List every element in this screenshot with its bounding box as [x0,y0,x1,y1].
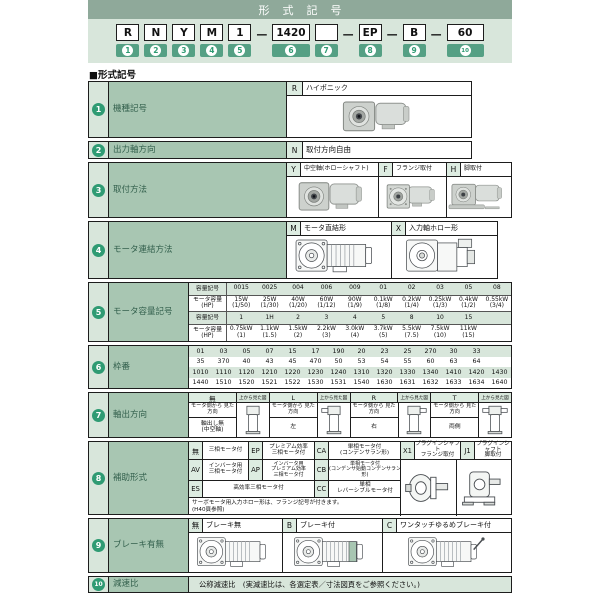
image-box [189,533,282,572]
shaft-direction-option: T上から見た図 モータ側から 見た方向 両側 [431,393,511,437]
frame-number-cell: 1510 [212,378,235,389]
row-number-cell: 8 [89,442,109,514]
header-title: 形式記号 [88,0,512,19]
code-cell: F [379,163,393,176]
row-label: ブレーキ有無 [109,519,189,572]
mount-option: H 脚取付 [447,163,511,217]
frame-number-cell: 1634 [465,378,488,389]
code-cell: 無 [189,519,203,532]
image-box [287,236,391,278]
capacity-value-cell: 0.55kW(3/4) [483,296,511,311]
code-unit: B9 [403,24,426,57]
code-cell: J1 [461,442,475,459]
code-box: 1 [228,24,251,41]
capacity-code-cell: 08 [483,283,511,295]
frame-number-cell: 54 [373,357,396,368]
code-cell: 無 [189,442,203,459]
image-box [318,403,350,437]
code-cell: X1 [401,442,415,459]
direction-label: 左 [270,418,317,437]
capacity-hp: (2) [294,333,303,340]
row-number: 6 [92,361,105,374]
capacity-row-label-line: (HP) [201,333,213,339]
brake-option: 無 ブレーキ無 [189,519,283,572]
code-desc: 入力軸ホロー形 [406,222,461,235]
hollow-shaft-gearmotor-icon [293,178,373,216]
row-number: 3 [92,184,105,197]
code-desc: プラグインシャフト フランジ取付 [415,442,461,459]
image-box [287,96,471,137]
frame-number-cell: 1330 [396,367,419,378]
image-box [457,460,512,516]
table-row-frame-number: 6 枠番 01030507151719020232527030333537040… [88,345,512,389]
frame-number-cell: 190 [327,346,350,357]
shaft-right-diagram-icon [401,404,427,436]
dash-separator: — [387,28,398,41]
top-view-label: 上から見た図 [237,393,269,402]
frame-number-cell [488,346,511,357]
aux-images [401,460,511,516]
code-desc: 脚取付 [461,163,485,176]
capacity-hp: (1/3) [433,303,447,310]
code-desc: 取付方向自由 [303,142,354,158]
code-desc: 単相モータ付 (コンデンサ始動コンデンサラン形) [329,460,401,480]
frame-number-cell: 270 [419,346,442,357]
frame-number-cell: 45 [281,357,304,368]
capacity-hp: (1) [237,333,246,340]
capacity-table: 容量記号001500250040060090102030508モータ容量(HP)… [189,283,511,341]
table-row-reduction-ratio: 10 減速比 公称減速比 (実減速比は、各選定表／寸法図頁をご参照ください。) [88,576,512,593]
row-number-cell: 4 [89,222,109,278]
table-row-brake: 9 ブレーキ有無 無 ブレーキ無 B ブレーキ付 [88,518,512,573]
table-row-motor-capacity: 5 モータ容量記号 容量記号00150025004006009010203050… [88,282,512,342]
code-cell: L [270,393,318,402]
code-desc: インバータ用 三相モータ付 [203,460,249,480]
shaft-direction-option: L上から見た図 モータ側から 見た方向 左 [270,393,351,437]
table-row-type: 1 機種記号 R ハイポニック [88,81,472,138]
model-code-header: 形式記号 R1N2Y3M415—142067—EP8—B9—6010 [88,0,512,63]
row-number-cell: 7 [89,393,109,437]
code-box [315,24,338,41]
frame-number-cell: 370 [212,357,235,368]
row-number-cell: 5 [89,283,109,341]
code-desc: 高効率三相モータ付 [203,481,315,497]
row-number: 2 [92,144,105,157]
code-cell: AP [249,460,263,480]
code-box: M [200,24,223,41]
row-label: 出力軸方向 [109,142,287,158]
code-box: EP [359,24,382,41]
row-label: 軸出方向 [109,393,189,437]
direction-label: 両側 [431,418,478,437]
top-view-label: 上から見た図 [398,393,430,402]
capacity-code-cell: 5 [369,312,397,324]
code-header: C ワンタッチゆるめブレーキ付 [383,519,511,533]
frame-number-cell: 1430 [488,367,511,378]
capacity-code-cell: 03 [426,283,454,295]
code-unit: 14206 [272,24,309,57]
code-desc: ワンタッチゆるめブレーキ付 [397,519,494,532]
section-heading: ■形式記号 [89,67,136,81]
row-content: 無 三相モータ付 EP プレミアム効率 三相モータ付 CA 単相モータ付 (コン… [189,442,511,514]
code-cell: B [283,519,297,532]
view-label: モータ側から 見た方向 [270,403,317,418]
aux-row-1: 無 三相モータ付 EP プレミアム効率 三相モータ付 CA 単相モータ付 (コン… [189,442,511,460]
row-content: Y 中空軸(ホローシャフト) F フランジ取付 [287,163,511,217]
code-header: N 取付方向自由 [287,142,471,158]
capacity-value-cell: 40W(1/20) [284,296,312,311]
direction-label: 右 [351,418,398,437]
row-content: M モータ直結形 X 入力軸ホロー形 [287,222,497,278]
top-view-label: 上から見た図 [479,393,511,402]
code-cell: H [447,163,461,176]
frame-number-cell: 470 [304,357,327,368]
capacity-code-cell: 8 [397,312,425,324]
capacity-value-cell: 3.7kW(5) [369,325,397,341]
code-desc: ブレーキ無 [203,519,244,532]
code-number-chip: 8 [359,44,382,57]
view-label: モータ側から 見た方向 [189,403,236,418]
capacity-value-cell: 15W(1/50) [227,296,255,311]
capacity-hp: (1/20) [289,303,307,310]
table-row-output-shaft: 2 出力軸方向 N 取付方向自由 [88,141,472,159]
code-header: Y 中空軸(ホローシャフト) [287,163,378,177]
code-number: 5 [234,45,245,56]
code-unit: 15 [228,24,251,57]
code-desc: フランジ取付 [393,163,435,176]
frame-number-cell: 1240 [327,367,350,378]
code-header: M モータ直結形 [287,222,391,236]
frame-number-cell: 15 [281,346,304,357]
aux-note: サーボモータ用入力ホロー形は、フランジ記号が付きます。 (H40頁参照) [189,498,400,516]
motor-release-brake-drawing-icon [404,535,490,571]
capacity-code-cell [483,312,511,324]
code-cell: C [383,519,397,532]
capacity-hp: (3) [322,333,331,340]
row-content: 無 ブレーキ無 B ブレーキ付 [189,519,511,572]
capacity-value-cell: 1.5kW(2) [284,325,312,341]
code-cell: T [431,393,479,402]
code-number-chip: 3 [172,44,195,57]
code-number: 3 [178,45,189,56]
row-number: 9 [92,539,105,552]
code-number: 2 [150,45,161,56]
code-cell: M [287,222,301,235]
frame-number-cell: 50 [327,357,350,368]
code-cell: Y [287,163,301,176]
code-desc: ハイポニック [303,82,351,95]
frame-number-cell: 1540 [350,378,373,389]
capacity-code-cell: 004 [284,283,312,295]
dash-separator: — [343,28,354,41]
code-desc: プラグインシャフト 脚取付 [475,442,511,459]
code-unit: N2 [144,24,167,57]
capacity-row-label-line: (HP) [201,303,213,309]
shaft-none-diagram-icon [240,404,266,436]
code-unit: M4 [200,24,223,57]
capacity-code-cell: 1H [255,312,283,324]
code-desc: 単相モータ付 (コンデンサラン形) [329,442,401,459]
aux-row-3: ES 高効率三相モータ付 CC 単相 レバーシブルモータ付 [189,481,400,498]
image-box [283,533,382,572]
capacity-code-cell: 02 [397,283,425,295]
capacity-value-cell [483,325,511,341]
frame-number-cell: 17 [304,346,327,357]
capacity-code-row: 容量記号001500250040060090102030508 [189,283,511,296]
row-label: 減速比 [109,577,189,592]
table-row-shaft-direction: 7 軸出方向 無上から見た図 モータ側から 見た方向 軸出し無 (中空軸) [88,392,512,438]
capacity-hp: (3/4) [490,303,504,310]
image-box [479,403,511,437]
shaft-left-diagram-icon [321,404,347,436]
row-label: 機種記号 [109,82,287,137]
frame-number-row: 0103050715171902023252703033 [189,346,511,357]
frame-number-cell: 1520 [235,378,258,389]
code-header: H 脚取付 [447,163,511,177]
frame-number-cell: 1420 [465,367,488,378]
code-cell: CC [315,481,329,497]
row-content: R ハイポニック [287,82,471,137]
code-number: 8 [365,45,376,56]
frame-number-cell: 23 [373,346,396,357]
frame-number-cell: 03 [212,346,235,357]
frame-number-cell: 64 [465,357,488,368]
capacity-hp: (1/2) [461,303,475,310]
capacity-hp: (1/30) [261,303,279,310]
code-cell: AV [189,460,203,480]
coupling-option: M モータ直結形 [287,222,392,278]
capacity-code-cell: 15 [454,312,482,324]
code-number-chip: 9 [403,44,426,57]
frame-number-cell: 1410 [442,367,465,378]
catalog-page: 形式記号 R1N2Y3M415—142067—EP8—B9—6010 ■形式記号… [0,0,600,600]
frame-number-cell [488,357,511,368]
frame-number-cell: 40 [235,357,258,368]
capacity-value-cell: 5.5kW(7.5) [397,325,425,341]
frame-number-cell: 1521 [258,378,281,389]
frame-number-cell: 1320 [373,367,396,378]
code-unit: 7 [315,24,338,57]
brake-option: C ワンタッチゆるめブレーキ付 [383,519,511,572]
capacity-value-cell: 2.2kW(3) [312,325,340,341]
image-box [383,533,511,572]
row-number: 1 [92,103,105,116]
row-number: 4 [92,244,105,257]
capacity-hp: (1/12) [317,303,335,310]
capacity-row-label: モータ容量(HP) [189,296,227,311]
code-number: 6 [285,45,296,56]
image-box [401,460,457,516]
code-header: F フランジ取付 [379,163,446,177]
code-box: 60 [447,24,484,41]
capacity-code-cell: 0015 [227,283,255,295]
code-desc: モータ直結形 [301,222,349,235]
code-cell: 無 [189,393,237,402]
frame-number-cell: 60 [419,357,442,368]
code-panel: R1N2Y3M415—142067—EP8—B9—6010 [88,19,512,63]
frame-number-cell: 43 [258,357,281,368]
row-label: 取付方法 [109,163,287,217]
aux-row-2: AV インバータ用 三相モータ付 AP インバータ用 プレミアム効率 三相モータ… [189,460,400,481]
code-cell: ES [189,481,203,497]
frame-number-row: 3537040434547050535455606364 [189,357,511,368]
frame-number-cell: 1632 [419,378,442,389]
code-box: B [403,24,426,41]
capacity-row-label: 容量記号 [189,312,227,324]
code-number-chip: 10 [447,44,484,57]
plugin-shaft-flange-drawing-icon [403,466,453,510]
image-box [287,177,378,217]
capacity-hp: (1/4) [404,303,418,310]
capacity-value-cell: 0.75kW(1) [227,325,255,341]
aux-lower: AV インバータ用 三相モータ付 AP インバータ用 プレミアム効率 三相モータ… [189,460,511,516]
frame-number-cell: 1010 [189,367,212,378]
code-box: 1420 [272,24,309,41]
shaft-both-diagram-icon [482,404,508,436]
code-header: R ハイポニック [287,82,471,96]
frame-number-cell: 1630 [373,378,396,389]
capacity-value-cell: 7.5kW(10) [426,325,454,341]
flange-mount-gearmotor-icon [380,179,446,215]
capacity-value-cell: 3.0kW(4) [341,325,369,341]
frame-number-cell: 1522 [281,378,304,389]
direct-coupled-motor-drawing-icon [291,237,387,277]
frame-number-cell: 1531 [327,378,350,389]
code-box: Y [172,24,195,41]
foot-mount-gearmotor-icon [447,179,511,215]
row-number-cell: 9 [89,519,109,572]
dash-separator: — [256,28,267,41]
coupling-option: X 入力軸ホロー形 [392,222,497,278]
capacity-code-cell: 009 [341,283,369,295]
row-content: 無上から見た図 モータ側から 見た方向 軸出し無 (中空軸) [189,393,511,437]
table-row-motor-coupling: 4 モータ連結方法 M モータ直結形 X 入力軸ホロー形 [88,221,498,279]
frame-number-cell: 55 [396,357,419,368]
capacity-hp: (7.5) [405,333,419,340]
plugin-shaft-foot-drawing-icon [459,466,509,510]
code-number-chip: 7 [315,44,338,57]
code-desc: 中空軸(ホローシャフト) [301,163,372,176]
code-number: 10 [460,45,471,56]
row-label: モータ連結方法 [109,222,287,278]
code-number: 7 [321,45,332,56]
motor-no-brake-drawing-icon [193,535,279,571]
capacity-code-cell: 05 [454,283,482,295]
row-content: N 取付方向自由 [287,142,471,158]
code-number-chip: 4 [200,44,223,57]
frame-number-cell: 1210 [258,367,281,378]
mount-option: Y 中空軸(ホローシャフト) [287,163,379,217]
frame-number-cell: 53 [350,357,373,368]
direction-label: 軸出し無 (中空軸) [189,418,236,437]
capacity-hp: (4) [351,333,360,340]
frame-number-cell: 1633 [442,378,465,389]
code-desc: プレミアム効率 三相モータ付 [263,442,315,459]
frame-number-cell: 1340 [419,367,442,378]
code-header: B ブレーキ付 [283,519,382,533]
frame-number-cell: 30 [442,346,465,357]
image-box [392,236,497,278]
capacity-value-cell: 0.4kW(1/2) [454,296,482,311]
code-unit: R1 [116,24,139,57]
frame-number-cell: 1110 [212,367,235,378]
motor-with-brake-drawing-icon [290,535,376,571]
model-code-table: 1 機種記号 R ハイポニック 2 出力軸方向 N 取付方向自由 [88,81,512,596]
frame-number-cell: 33 [465,346,488,357]
capacity-hp: (1/9) [348,303,362,310]
frame-number-cell: 1230 [304,367,327,378]
code-cell: N [287,142,303,158]
code-header: X 入力軸ホロー形 [392,222,497,236]
capacity-code-row: 容量記号11H234581015 [189,312,511,325]
code-desc: ブレーキ付 [297,519,338,532]
capacity-value-cell: 1.1kW(1.5) [255,325,283,341]
image-box [379,177,446,217]
frame-number-cell: 1640 [488,378,511,389]
image-box [399,403,431,437]
row-number-cell: 3 [89,163,109,217]
capacity-value-row: モータ容量(HP)15W(1/50)25W(1/30)40W(1/20)60W(… [189,296,511,312]
ratio-note: 公称減速比 (実減速比は、各選定表／寸法図頁をご参照ください。) [189,577,511,592]
code-unit: Y3 [172,24,195,57]
image-box [447,177,511,217]
frame-number-cell: 01 [189,346,212,357]
view-label: モータ側から 見た方向 [431,403,478,418]
row-number-cell: 2 [89,142,109,158]
capacity-hp: (1.5) [262,333,276,340]
capacity-code-cell: 10 [426,312,454,324]
row-label: 補助形式 [109,442,189,514]
row-number: 10 [92,578,105,591]
code-box: R [116,24,139,41]
code-cell: R [351,393,399,402]
capacity-hp: (1/8) [376,303,390,310]
frame-number-cell: 63 [442,357,465,368]
capacity-value-cell: 0.2kW(1/4) [397,296,425,311]
aux-left-table: AV インバータ用 三相モータ付 AP インバータ用 プレミアム効率 三相モータ… [189,460,401,516]
hyponic-gearmotor-photo-icon [324,97,434,137]
code-cell: X [392,222,406,235]
row-label: 枠番 [109,346,189,388]
frame-number-row: 1010111011201210122012301240131013201330… [189,367,511,378]
capacity-value-cell: 60W(1/12) [312,296,340,311]
code-number: 1 [122,45,133,56]
row-label: モータ容量記号 [109,283,189,341]
row-number-cell: 6 [89,346,109,388]
code-row: R1N2Y3M415—142067—EP8—B9—6010 [116,24,483,57]
capacity-hp: (1/50) [232,303,250,310]
frame-number-cell: 07 [258,346,281,357]
capacity-value-cell: 25W(1/30) [255,296,283,311]
code-desc: 三相モータ付 [203,442,249,459]
capacity-code-cell: 3 [312,312,340,324]
shaft-direction-option: 無上から見た図 モータ側から 見た方向 軸出し無 (中空軸) [189,393,270,437]
code-cell: CB [315,460,329,480]
capacity-value-cell: 0.1kW(1/8) [369,296,397,311]
code-desc: インバータ用 プレミアム効率 三相モータ付 [263,460,315,480]
dash-separator: — [431,28,442,41]
frame-number-row: 1440151015201521152215301531154016301631… [189,378,511,389]
code-cell: R [287,82,303,95]
frame-grid: 0103050715171902023252703033353704043454… [189,346,511,388]
code-number: 4 [206,45,217,56]
frame-number-cell: 1310 [350,367,373,378]
capacity-value-cell: 0.25kW(1/3) [426,296,454,311]
frame-number-cell: 1530 [304,378,327,389]
capacity-code-cell: 0025 [255,283,283,295]
frame-number-cell: 25 [396,346,419,357]
frame-number-cell: 35 [189,357,212,368]
